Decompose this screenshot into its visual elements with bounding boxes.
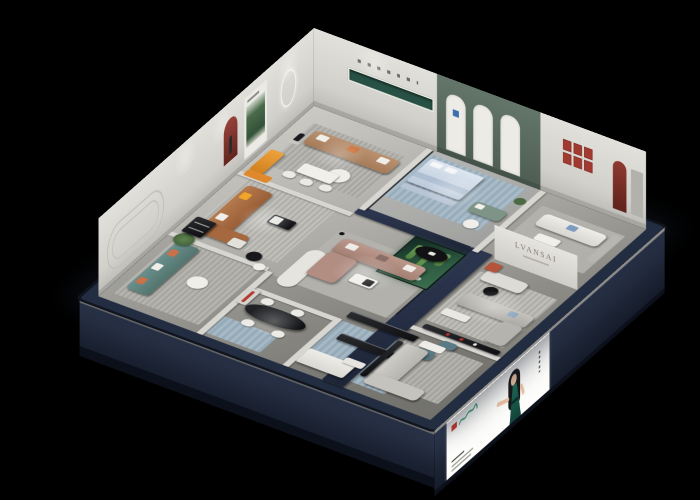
- light-pool-1: [300, 134, 377, 175]
- curved-partition: [273, 248, 330, 289]
- arch-panel-1: [446, 92, 466, 157]
- dining-chair-7: [269, 329, 287, 339]
- display-shelf: [236, 288, 261, 306]
- red-accent-sculpture: [241, 291, 256, 303]
- black-oval-dining-table: [238, 300, 312, 335]
- partition-6: [246, 285, 340, 322]
- sage-sofa: [466, 201, 508, 222]
- bedroom-plant: [511, 197, 528, 207]
- hostess-arm-hip: [520, 382, 525, 395]
- statue: [292, 133, 306, 142]
- mauve-corner-sofa: [330, 238, 428, 282]
- media-console: [421, 323, 501, 355]
- banner-vertical-caption: [539, 350, 540, 373]
- showroom-render: LVANSAI: [0, 0, 700, 500]
- dining-chair-6: [239, 318, 257, 328]
- bed-pillow-1: [429, 161, 444, 169]
- dining-chair-1: [280, 169, 298, 179]
- pillow-blue-2: [506, 311, 519, 318]
- bed-duvet-fold: [412, 171, 470, 195]
- gray-corner-sofa: [455, 292, 536, 329]
- arch-logo-badge: [453, 109, 459, 118]
- glass-terrarium: [375, 236, 467, 291]
- center-coffee-table: [348, 273, 379, 289]
- brown-sofa-chaise: [195, 221, 251, 248]
- red-frame-6: [584, 160, 592, 174]
- pillow-orange: [345, 145, 360, 153]
- rug-tan-lounge: [267, 123, 406, 199]
- white-bench: [440, 308, 472, 323]
- teal-ottoman-1: [410, 347, 437, 362]
- red-frame-3: [584, 147, 592, 161]
- red-frame-2: [574, 143, 582, 157]
- cactus-1: [404, 244, 425, 259]
- black-round-table: [480, 285, 501, 297]
- black-oval-table: [410, 243, 452, 265]
- white-stool-pair: [341, 357, 367, 370]
- light-pool-6: [231, 299, 316, 343]
- banner-logo-script: [458, 400, 478, 429]
- niche-sculpture: [229, 135, 232, 156]
- rug-front-gallery: [294, 320, 431, 394]
- white-side-table: [250, 262, 267, 272]
- glass-partition-edge-1: [366, 151, 434, 210]
- arch-panel-2: [473, 102, 493, 167]
- pillow-blue: [565, 225, 579, 233]
- pillow-white-6: [344, 243, 359, 251]
- pillow-white-3: [214, 213, 229, 222]
- display-cabinet: [181, 216, 217, 238]
- hostess-figure: [494, 347, 538, 440]
- table-top-tray: [268, 216, 284, 225]
- partition-1: [237, 171, 354, 217]
- center-spine-wall: [322, 247, 493, 387]
- mauve-sofa-chaise: [305, 251, 359, 284]
- cactus-3: [433, 253, 453, 267]
- black-console-2: [335, 333, 404, 362]
- pillow-orange-3: [135, 276, 149, 284]
- center-cross-wall: [354, 206, 472, 254]
- white-modular-sofa: [295, 348, 357, 378]
- arch-panel-3: [500, 112, 520, 177]
- bed-pillow-2: [443, 167, 458, 175]
- media-lounge-white-sofa: [478, 269, 530, 294]
- round-coffee-table: [322, 167, 354, 186]
- building-shell: LVANSAI: [80, 95, 665, 431]
- lounge-armchair: [226, 237, 247, 249]
- partition-5: [410, 325, 501, 361]
- pebbles: [388, 266, 426, 283]
- black-console: [345, 311, 420, 342]
- plant: [169, 231, 199, 248]
- round-table-teal-room: [182, 274, 212, 291]
- light-pool-3: [411, 169, 496, 213]
- teal-ottoman-2: [437, 340, 459, 352]
- rug-media-lounge: [426, 271, 558, 348]
- gray-sofa-set: [372, 343, 430, 382]
- dining-chair-5: [289, 308, 307, 318]
- pillow-yellow: [238, 192, 253, 201]
- light-pool-5: [317, 247, 414, 298]
- dining-chair-4: [259, 297, 277, 307]
- banner-logo-block: [452, 421, 457, 431]
- light-pool-2: [227, 199, 304, 240]
- red-arch-niche-east: [613, 159, 627, 213]
- pillow-white-2: [376, 157, 391, 165]
- red-frame-4: [563, 152, 571, 166]
- gray-inset-panel: [631, 169, 643, 219]
- orange-bench-2: [243, 169, 274, 184]
- light-pool-4: [448, 284, 538, 332]
- pillow-mauve: [375, 254, 390, 262]
- statue-pedestal: [288, 139, 301, 145]
- floor-lamp: [338, 232, 345, 236]
- cactus-2: [410, 254, 433, 272]
- tan-sofa: [302, 130, 401, 174]
- partition-7: [282, 317, 342, 367]
- corner-console: [586, 235, 623, 263]
- bed-foot-bench: [399, 182, 457, 206]
- pillow-white-5: [474, 203, 486, 210]
- coffee-table-brown-room: [266, 214, 297, 230]
- gray-sofa-set-2: [362, 372, 427, 402]
- rug-center-lounge: [283, 229, 443, 317]
- decor-red-2: [459, 338, 464, 341]
- tv-console: [359, 340, 404, 377]
- bedroom-side-table: [460, 217, 482, 230]
- oval-table-decor: [427, 251, 436, 256]
- glass-partition-edge-2: [395, 254, 465, 315]
- rug-dining: [205, 316, 278, 353]
- pillow-orange-2: [166, 249, 180, 257]
- gray-sofa-chaise: [483, 321, 524, 347]
- partition-8: [196, 270, 273, 335]
- white-ottoman: [418, 340, 447, 354]
- cabinet-shelf-line: [194, 221, 210, 227]
- red-frame-1: [563, 139, 571, 153]
- decor-white-1: [472, 343, 477, 346]
- decor-red-1: [445, 333, 450, 336]
- white-sofa: [534, 213, 609, 247]
- pillow-white-7: [402, 264, 417, 272]
- dining-table: [295, 163, 340, 185]
- dining-chair-3: [317, 183, 335, 193]
- dining-chair-2: [298, 177, 316, 187]
- red-frame-5: [574, 156, 582, 170]
- cabinet-shelf-line-2: [188, 227, 204, 233]
- wall-spot-2: [172, 133, 199, 185]
- pillow-white-4: [150, 263, 164, 271]
- accent-chair: [484, 262, 504, 273]
- coffee-table-tray: [361, 279, 375, 287]
- partition-2: [168, 231, 270, 271]
- pillow-white: [315, 134, 330, 142]
- black-side-table: [243, 250, 265, 263]
- rug-front-right: [364, 336, 484, 404]
- partition-3: [359, 148, 434, 211]
